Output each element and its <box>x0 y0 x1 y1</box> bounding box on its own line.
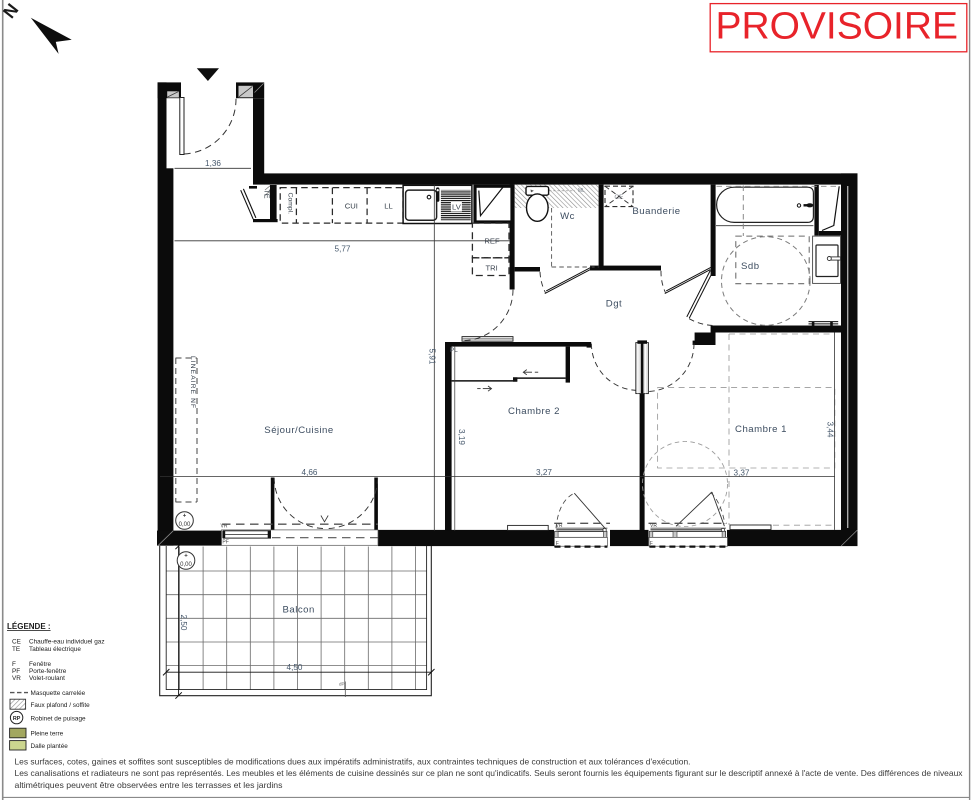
svg-text:5,91: 5,91 <box>428 349 437 365</box>
svg-text:Séjour/Cuisine: Séjour/Cuisine <box>264 425 333 436</box>
svg-text:RP: RP <box>13 716 21 722</box>
svg-text:altimétriques peuvent être obs: altimétriques peuvent être observées ent… <box>15 780 283 790</box>
svg-text:F: F <box>12 661 16 668</box>
svg-text:Wc: Wc <box>560 211 575 222</box>
svg-text:Sdb: Sdb <box>741 261 760 272</box>
svg-text:Fenêtre: Fenêtre <box>29 661 51 668</box>
svg-text:VR: VR <box>12 675 21 682</box>
svg-text:PF: PF <box>12 668 20 675</box>
svg-text:Faux plafond / soffite: Faux plafond / soffite <box>31 702 91 709</box>
svg-text:LV: LV <box>452 203 462 212</box>
svg-text:VR: VR <box>221 524 228 530</box>
svg-text:3,44: 3,44 <box>825 422 834 438</box>
svg-text:dP: dP <box>339 682 345 687</box>
svg-text:5,77: 5,77 <box>335 244 351 253</box>
svg-text:Chambre 2: Chambre 2 <box>508 406 560 417</box>
svg-text:Les surfaces, cotes, gaines et: Les surfaces, cotes, gaines et soffites … <box>15 756 691 766</box>
svg-text:Buanderie: Buanderie <box>632 206 680 217</box>
svg-text:LL: LL <box>384 201 392 210</box>
svg-text:Tableau électrique: Tableau électrique <box>29 646 81 653</box>
svg-text:4,50: 4,50 <box>287 663 303 672</box>
svg-text:Robinet de puisage: Robinet de puisage <box>31 715 87 722</box>
svg-text:TE: TE <box>12 646 20 653</box>
svg-text:Dalle plantée: Dalle plantée <box>31 743 69 750</box>
svg-text:Chauffe-eau individuel gaz: Chauffe-eau individuel gaz <box>29 638 105 645</box>
svg-text:F: F <box>650 541 653 547</box>
svg-text:PF: PF <box>222 540 228 546</box>
svg-text:CE: CE <box>614 194 624 201</box>
svg-text:3,37: 3,37 <box>734 469 750 478</box>
svg-text:REF: REF <box>484 237 500 246</box>
svg-text:Chambre 1: Chambre 1 <box>735 424 787 435</box>
svg-text:LÉGENDE :: LÉGENDE : <box>7 622 51 631</box>
svg-text:Dgt: Dgt <box>606 299 622 310</box>
svg-text:CE: CE <box>12 638 21 645</box>
svg-text:PL: PL <box>450 347 459 354</box>
svg-text:LINEAIRE NF: LINEAIRE NF <box>189 356 196 408</box>
svg-text:TE: TE <box>262 189 271 198</box>
svg-text:2,50: 2,50 <box>179 615 188 631</box>
svg-text:0,00: 0,00 <box>180 562 192 568</box>
svg-text:Masquette carrelée: Masquette carrelée <box>31 690 86 697</box>
svg-text:1,36: 1,36 <box>205 159 221 168</box>
svg-text:TRI: TRI <box>485 263 497 272</box>
svg-text:PROVISOIRE: PROVISOIRE <box>716 6 959 48</box>
svg-text:Porte-fenêtre: Porte-fenêtre <box>29 668 67 675</box>
svg-text:3,27: 3,27 <box>536 468 552 477</box>
svg-text:Compl.: Compl. <box>287 193 294 215</box>
svg-text:0,00: 0,00 <box>179 522 191 528</box>
svg-text:ML: ML <box>578 188 585 194</box>
svg-text:Pleine terre: Pleine terre <box>31 731 64 738</box>
svg-text:Balcon: Balcon <box>283 604 315 615</box>
svg-text:Volet-roulant: Volet-roulant <box>29 675 65 682</box>
svg-text:3,19: 3,19 <box>457 429 466 445</box>
svg-text:4,66: 4,66 <box>302 468 318 477</box>
svg-text:Les canalisations et radiateur: Les canalisations et radiateurs ne sont … <box>15 768 964 778</box>
svg-text:F: F <box>556 541 559 547</box>
svg-text:CUI: CUI <box>345 201 358 210</box>
